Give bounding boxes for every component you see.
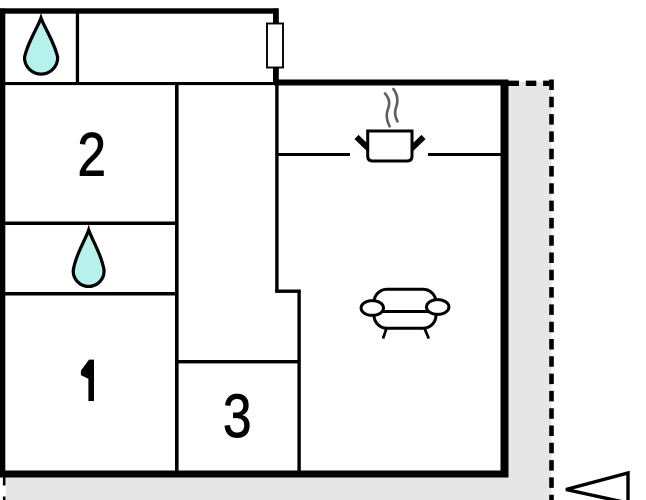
svg-text:3: 3 [223, 382, 251, 450]
svg-text:2: 2 [77, 120, 105, 188]
